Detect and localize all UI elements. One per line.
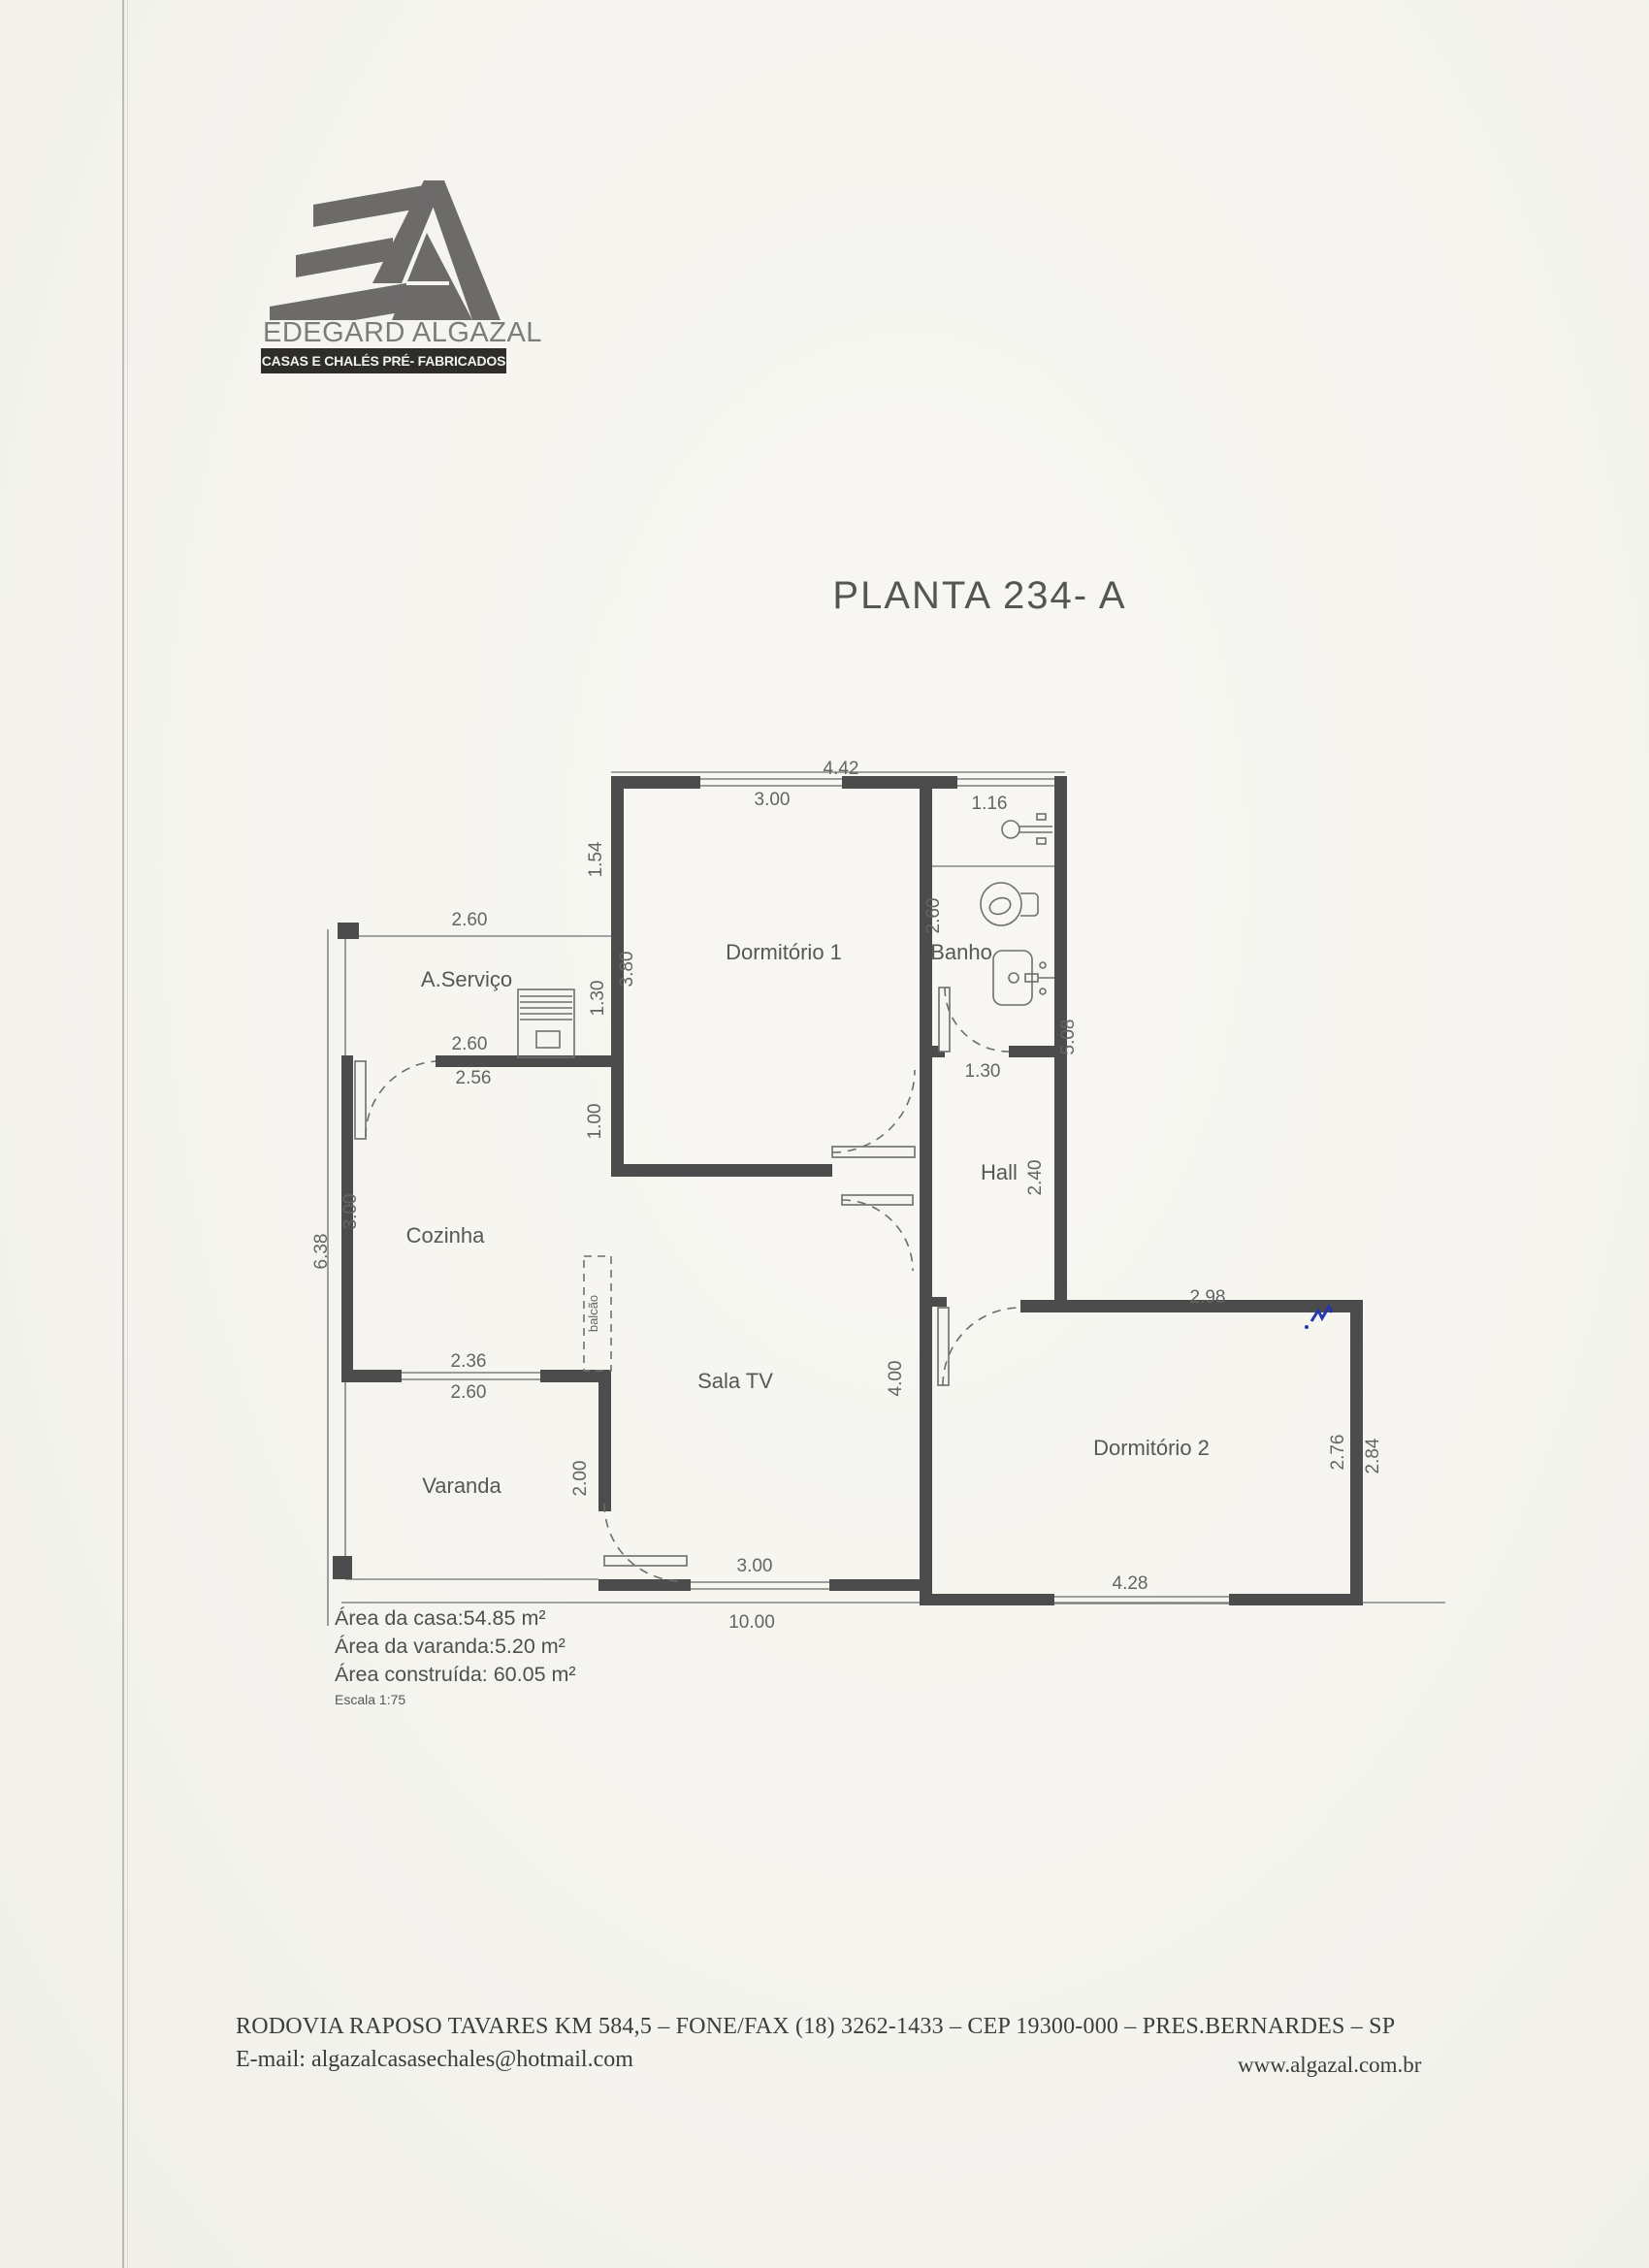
area-porch: Área da varanda:5.20 m² xyxy=(335,1635,566,1659)
room-label: Dormitório 2 xyxy=(1093,1436,1210,1460)
dim-label: 2.60 xyxy=(452,1034,488,1054)
dim-label: 2.98 xyxy=(1190,1287,1226,1308)
dim-label: 1.16 xyxy=(972,794,1008,814)
counter-label: balcão xyxy=(586,1295,600,1332)
dim-label: 3.00 xyxy=(340,1194,361,1230)
room-label: Hall xyxy=(981,1160,1018,1184)
dim-label: 2.40 xyxy=(1025,1160,1046,1196)
dim-label: 4.00 xyxy=(886,1361,906,1397)
area-house: Área da casa:54.85 m² xyxy=(335,1606,546,1631)
scanned-document-page: EDEGARD ALGAZAL CASAS E CHALÉS PRÉ- FABR… xyxy=(0,0,1649,2268)
room-label: Cozinha xyxy=(406,1223,485,1247)
laundry-tank-icon xyxy=(518,989,574,1057)
windows xyxy=(402,779,1229,1604)
dim-label: 2.36 xyxy=(451,1351,487,1372)
shower-icon xyxy=(1002,814,1052,844)
dim-label: 2.56 xyxy=(456,1068,492,1088)
room-label: Varanda xyxy=(422,1474,501,1498)
toilet-icon xyxy=(981,883,1038,925)
dim-label: 6.38 xyxy=(311,1234,332,1270)
dim-label: 3.80 xyxy=(617,952,637,988)
dim-label: 5.08 xyxy=(1058,1020,1079,1055)
room-label: Dormitório 1 xyxy=(726,940,842,964)
dim-label: 2.60 xyxy=(451,1382,487,1403)
dim-label: 1.54 xyxy=(586,841,606,877)
area-built: Área construída: 60.05 m² xyxy=(335,1663,576,1687)
dim-label: 4.42 xyxy=(824,759,859,779)
footer-address: RODOVIA RAPOSO TAVARES KM 584,5 – FONE/F… xyxy=(236,2014,1395,2040)
dim-label: 2.76 xyxy=(1328,1435,1348,1471)
counter-balcao: balcão xyxy=(584,1256,611,1371)
dim-label: 1.00 xyxy=(585,1104,605,1140)
dim-label: 2.00 xyxy=(570,1461,591,1497)
sink-icon xyxy=(993,951,1054,1005)
dim-label: 2.84 xyxy=(1363,1438,1383,1474)
room-label: A.Serviço xyxy=(421,967,512,991)
footer-email: E-mail: algazalcasasechales@hotmail.com xyxy=(236,2047,633,2073)
floor-plan: balcão Dormitório 1BanhoA.ServiçoHallCoz… xyxy=(0,0,1649,2268)
dim-label: 1.30 xyxy=(965,1061,1001,1082)
dim-label: 1.30 xyxy=(588,981,608,1017)
dim-label: 10.00 xyxy=(728,1612,775,1633)
footer-website: www.algazal.com.br xyxy=(1238,2053,1421,2078)
dim-label: 3.00 xyxy=(737,1556,773,1576)
room-labels: Dormitório 1BanhoA.ServiçoHallCozinhaSal… xyxy=(406,940,1210,1498)
dim-label: 2.60 xyxy=(452,910,488,930)
pen-mark-dot xyxy=(1305,1325,1309,1329)
room-label: Sala TV xyxy=(697,1369,773,1393)
dim-label: 4.28 xyxy=(1113,1573,1148,1594)
dim-label: 2.60 xyxy=(923,898,944,934)
dim-label: 3.00 xyxy=(755,790,791,810)
drawing-scale: Escala 1:75 xyxy=(335,1692,405,1707)
room-label: Banho xyxy=(930,940,992,964)
